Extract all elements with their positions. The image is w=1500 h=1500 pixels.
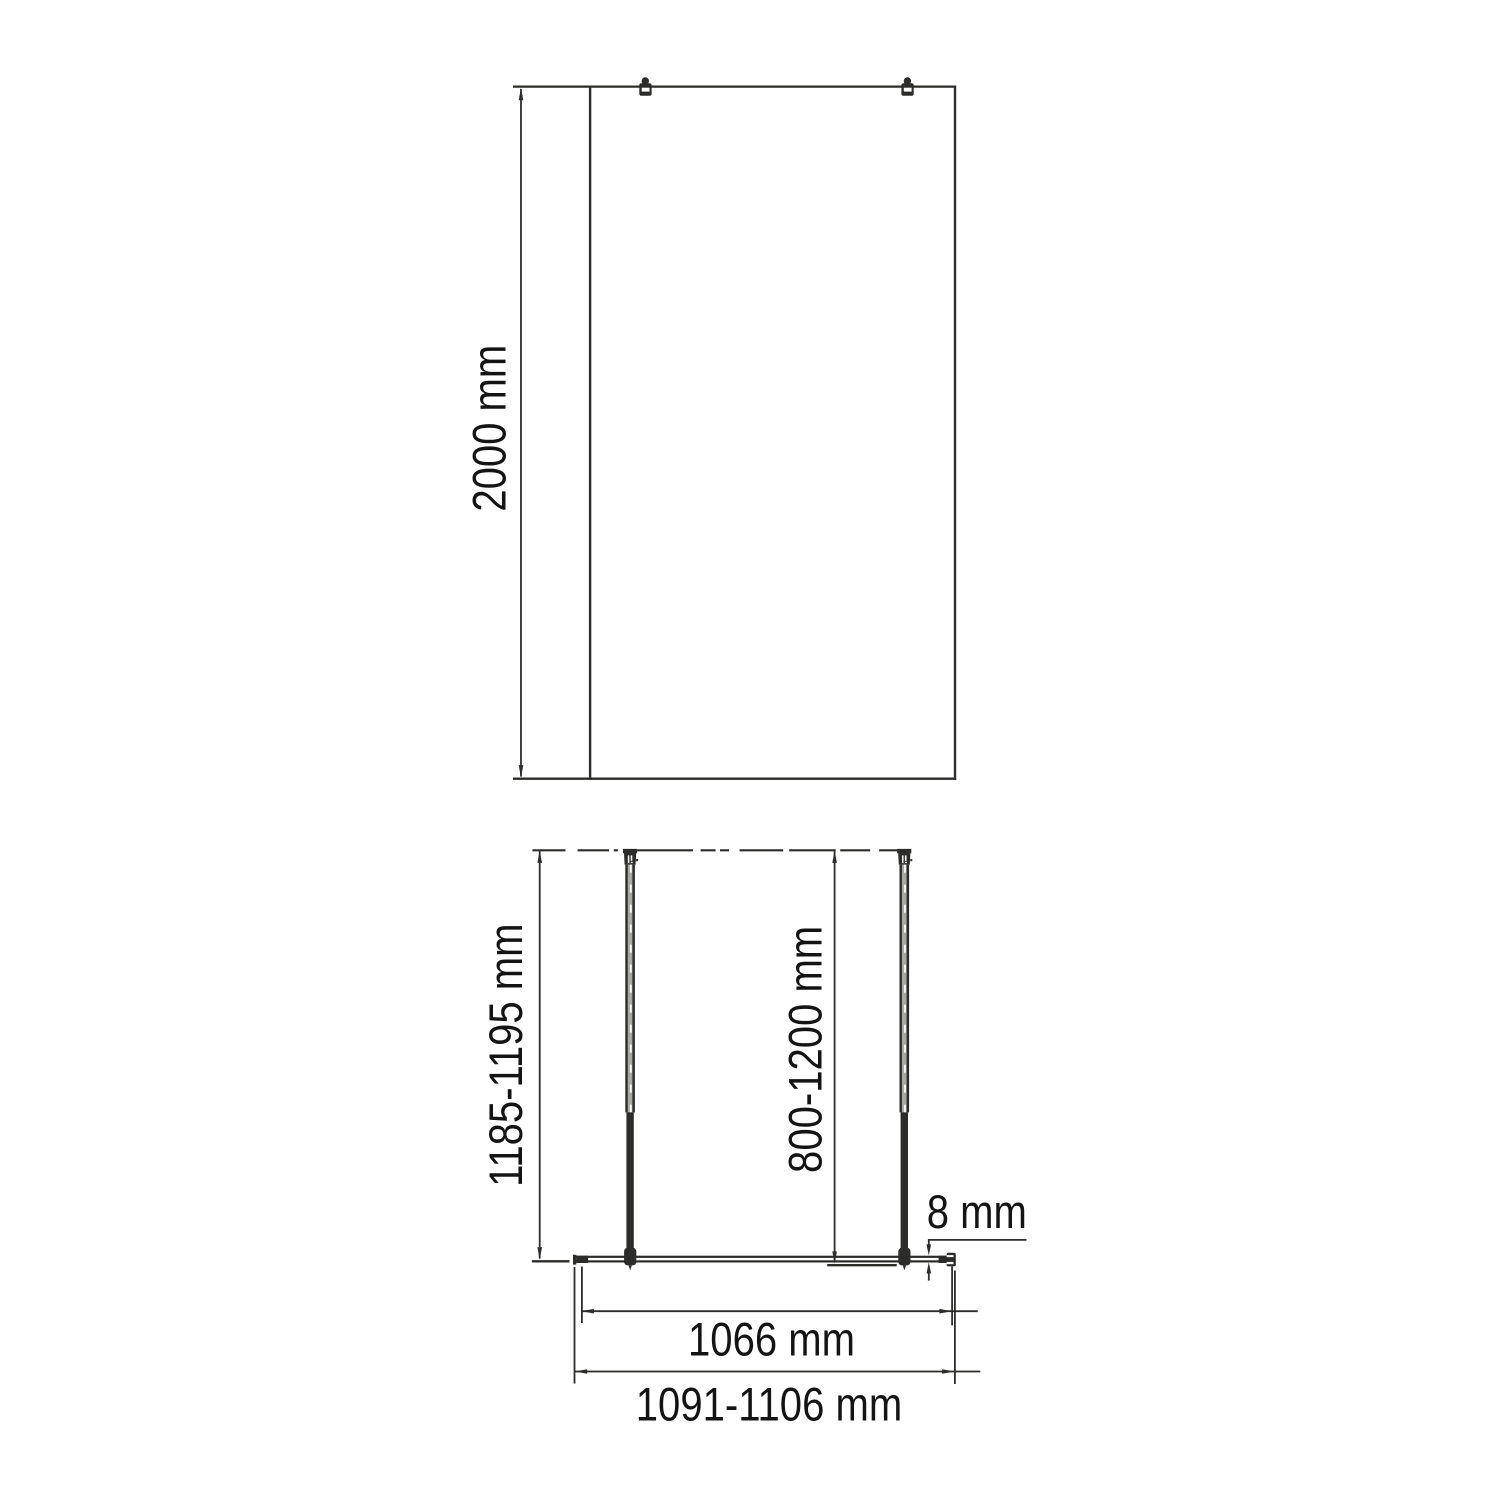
svg-text:8 mm: 8 mm (927, 1186, 1027, 1239)
svg-text:2000 mm: 2000 mm (464, 345, 517, 512)
svg-text:800-1200 mm: 800-1200 mm (780, 926, 833, 1173)
svg-text:1091-1106 mm: 1091-1106 mm (636, 1379, 902, 1432)
svg-text:1066 mm: 1066 mm (688, 1314, 855, 1367)
svg-text:1185-1195 mm: 1185-1195 mm (480, 923, 533, 1186)
